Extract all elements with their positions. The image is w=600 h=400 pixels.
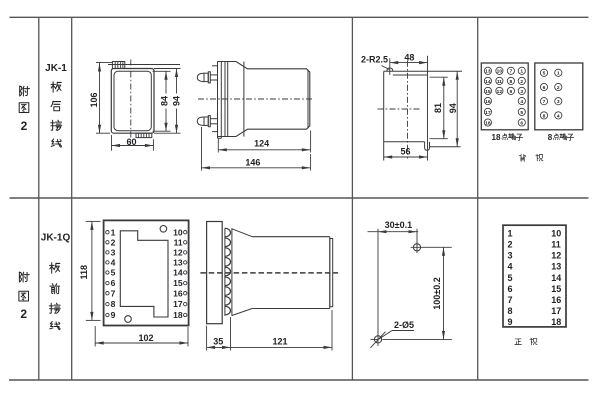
svg-text:4: 4 — [520, 99, 523, 105]
svg-text:102: 102 — [138, 333, 153, 343]
svg-text:94: 94 — [448, 103, 458, 113]
svg-text:11: 11 — [174, 237, 183, 247]
svg-text:3: 3 — [520, 89, 523, 95]
svg-text:8: 8 — [111, 299, 116, 309]
svg-text:16: 16 — [485, 99, 491, 105]
svg-text:18: 18 — [492, 133, 501, 142]
svg-text:2-Ø5: 2-Ø5 — [394, 320, 414, 330]
svg-text:8: 8 — [543, 113, 546, 119]
svg-text:1: 1 — [111, 227, 116, 237]
svg-text:4: 4 — [557, 113, 560, 119]
svg-text:106: 106 — [89, 92, 99, 107]
svg-text:15: 15 — [173, 278, 183, 288]
svg-text:3: 3 — [557, 99, 560, 105]
svg-text:1: 1 — [508, 229, 513, 239]
svg-text:11: 11 — [551, 240, 561, 250]
svg-text:56: 56 — [400, 146, 410, 156]
svg-text:2: 2 — [111, 237, 116, 247]
svg-text:118: 118 — [79, 265, 89, 280]
svg-text:16: 16 — [173, 288, 183, 298]
svg-text:10: 10 — [551, 229, 561, 239]
svg-text:84: 84 — [159, 96, 169, 106]
svg-text:17: 17 — [173, 299, 183, 309]
svg-text:5: 5 — [508, 273, 513, 283]
svg-text:8: 8 — [510, 79, 513, 85]
svg-text:9: 9 — [510, 89, 513, 95]
svg-text:17: 17 — [551, 306, 561, 316]
svg-text:6: 6 — [508, 284, 513, 294]
svg-text:8: 8 — [548, 133, 553, 142]
svg-text:4: 4 — [111, 258, 116, 268]
svg-text:2: 2 — [20, 307, 27, 321]
svg-text:1: 1 — [520, 69, 523, 75]
svg-text:124: 124 — [254, 138, 269, 148]
svg-text:12: 12 — [551, 251, 561, 261]
svg-text:6: 6 — [111, 278, 116, 288]
svg-text:18: 18 — [485, 120, 491, 126]
svg-text:10: 10 — [173, 227, 183, 237]
svg-text:48: 48 — [404, 52, 414, 62]
svg-text:12: 12 — [173, 248, 183, 258]
svg-text:7: 7 — [543, 99, 546, 105]
svg-text:JK-1: JK-1 — [45, 63, 67, 74]
svg-text:3: 3 — [111, 248, 116, 258]
svg-text:2: 2 — [557, 85, 560, 91]
svg-text:2: 2 — [21, 119, 28, 133]
svg-text:18: 18 — [173, 310, 183, 320]
svg-text:13: 13 — [551, 262, 561, 272]
svg-text:5: 5 — [111, 268, 116, 278]
svg-text:9: 9 — [111, 310, 116, 320]
svg-text:7: 7 — [508, 295, 513, 305]
svg-text:14: 14 — [485, 79, 491, 85]
svg-text:JK-1Q: JK-1Q — [41, 233, 71, 244]
svg-text:100±0.2: 100±0.2 — [432, 277, 442, 309]
svg-text:94: 94 — [172, 96, 182, 106]
svg-text:13: 13 — [173, 258, 183, 268]
svg-text:12: 12 — [497, 89, 503, 95]
svg-text:3: 3 — [508, 251, 513, 261]
svg-text:2-R2.5: 2-R2.5 — [361, 55, 388, 65]
svg-text:6: 6 — [520, 120, 523, 126]
svg-text:10: 10 — [497, 69, 503, 75]
svg-text:6: 6 — [543, 85, 546, 91]
svg-text:18: 18 — [551, 317, 561, 327]
svg-text:16: 16 — [551, 295, 561, 305]
svg-text:60: 60 — [126, 137, 136, 147]
svg-text:15: 15 — [485, 89, 491, 95]
svg-text:8: 8 — [508, 306, 513, 316]
svg-text:9: 9 — [508, 317, 513, 327]
svg-text:14: 14 — [551, 273, 561, 283]
svg-text:15: 15 — [551, 284, 561, 294]
svg-text:5: 5 — [520, 110, 523, 116]
svg-text:7: 7 — [111, 288, 116, 298]
svg-text:30±0.1: 30±0.1 — [385, 220, 412, 230]
svg-text:146: 146 — [245, 157, 260, 167]
svg-text:2: 2 — [508, 240, 513, 250]
svg-text:13: 13 — [485, 69, 491, 75]
svg-text:1: 1 — [557, 71, 560, 77]
svg-text:81: 81 — [433, 103, 443, 113]
svg-text:11: 11 — [497, 79, 502, 85]
svg-text:4: 4 — [508, 262, 513, 272]
svg-text:2: 2 — [520, 79, 523, 85]
svg-text:14: 14 — [173, 268, 183, 278]
svg-text:7: 7 — [510, 69, 513, 75]
svg-text:17: 17 — [485, 110, 491, 116]
svg-text:5: 5 — [543, 71, 546, 77]
svg-text:121: 121 — [272, 337, 287, 347]
svg-text:35: 35 — [213, 337, 223, 347]
